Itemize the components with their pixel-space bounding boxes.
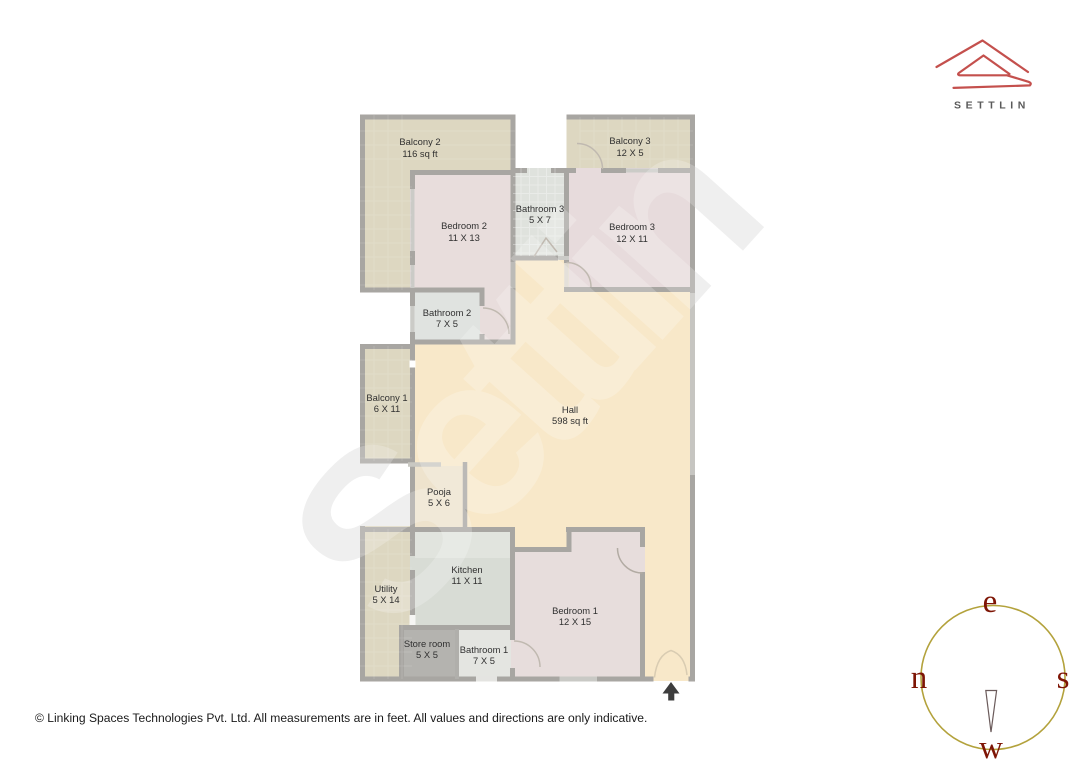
svg-text:12 X 11: 12 X 11 [616, 233, 648, 244]
svg-text:11 X 13: 11 X 13 [448, 232, 480, 243]
svg-text:5 X 6: 5 X 6 [428, 497, 450, 508]
svg-text:Hall: Hall [562, 404, 578, 415]
svg-text:Bathroom 1: Bathroom 1 [460, 644, 508, 655]
svg-text:s: s [1057, 660, 1070, 696]
svg-text:Bathroom 3: Bathroom 3 [516, 203, 564, 214]
svg-text:Utility: Utility [375, 583, 398, 594]
svg-text:598 sq ft: 598 sq ft [552, 415, 588, 426]
svg-text:7 X 5: 7 X 5 [473, 655, 495, 666]
svg-text:5 X 7: 5 X 7 [529, 214, 551, 225]
svg-text:5 X 5: 5 X 5 [416, 649, 438, 660]
svg-text:Kitchen: Kitchen [451, 564, 482, 575]
svg-text:7 X 5: 7 X 5 [436, 318, 458, 329]
svg-text:Bathroom 2: Bathroom 2 [423, 307, 471, 318]
svg-text:e: e [983, 584, 998, 620]
svg-text:6 X 11: 6 X 11 [374, 403, 400, 414]
svg-text:Balcony 3: Balcony 3 [609, 135, 650, 146]
svg-text:SETTLIN: SETTLIN [954, 100, 1030, 112]
svg-text:Pooja: Pooja [427, 486, 452, 497]
svg-text:w: w [979, 730, 1003, 764]
svg-text:5 X 14: 5 X 14 [372, 594, 399, 605]
svg-text:© Linking Spaces Technologies: © Linking Spaces Technologies Pvt. Ltd. … [35, 711, 647, 725]
svg-text:11 X 11: 11 X 11 [452, 575, 483, 586]
svg-text:116 sq ft: 116 sq ft [402, 148, 438, 159]
svg-text:Balcony 1: Balcony 1 [366, 392, 407, 403]
svg-text:n: n [911, 660, 928, 696]
svg-text:Bedroom 3: Bedroom 3 [609, 221, 655, 232]
svg-text:Bedroom 2: Bedroom 2 [441, 220, 487, 231]
svg-text:12 X 15: 12 X 15 [559, 616, 591, 627]
svg-text:Balcony 2: Balcony 2 [399, 136, 440, 147]
svg-text:12 X 5: 12 X 5 [616, 147, 643, 158]
svg-text:Store room: Store room [404, 638, 451, 649]
svg-text:Bedroom 1: Bedroom 1 [552, 605, 598, 616]
